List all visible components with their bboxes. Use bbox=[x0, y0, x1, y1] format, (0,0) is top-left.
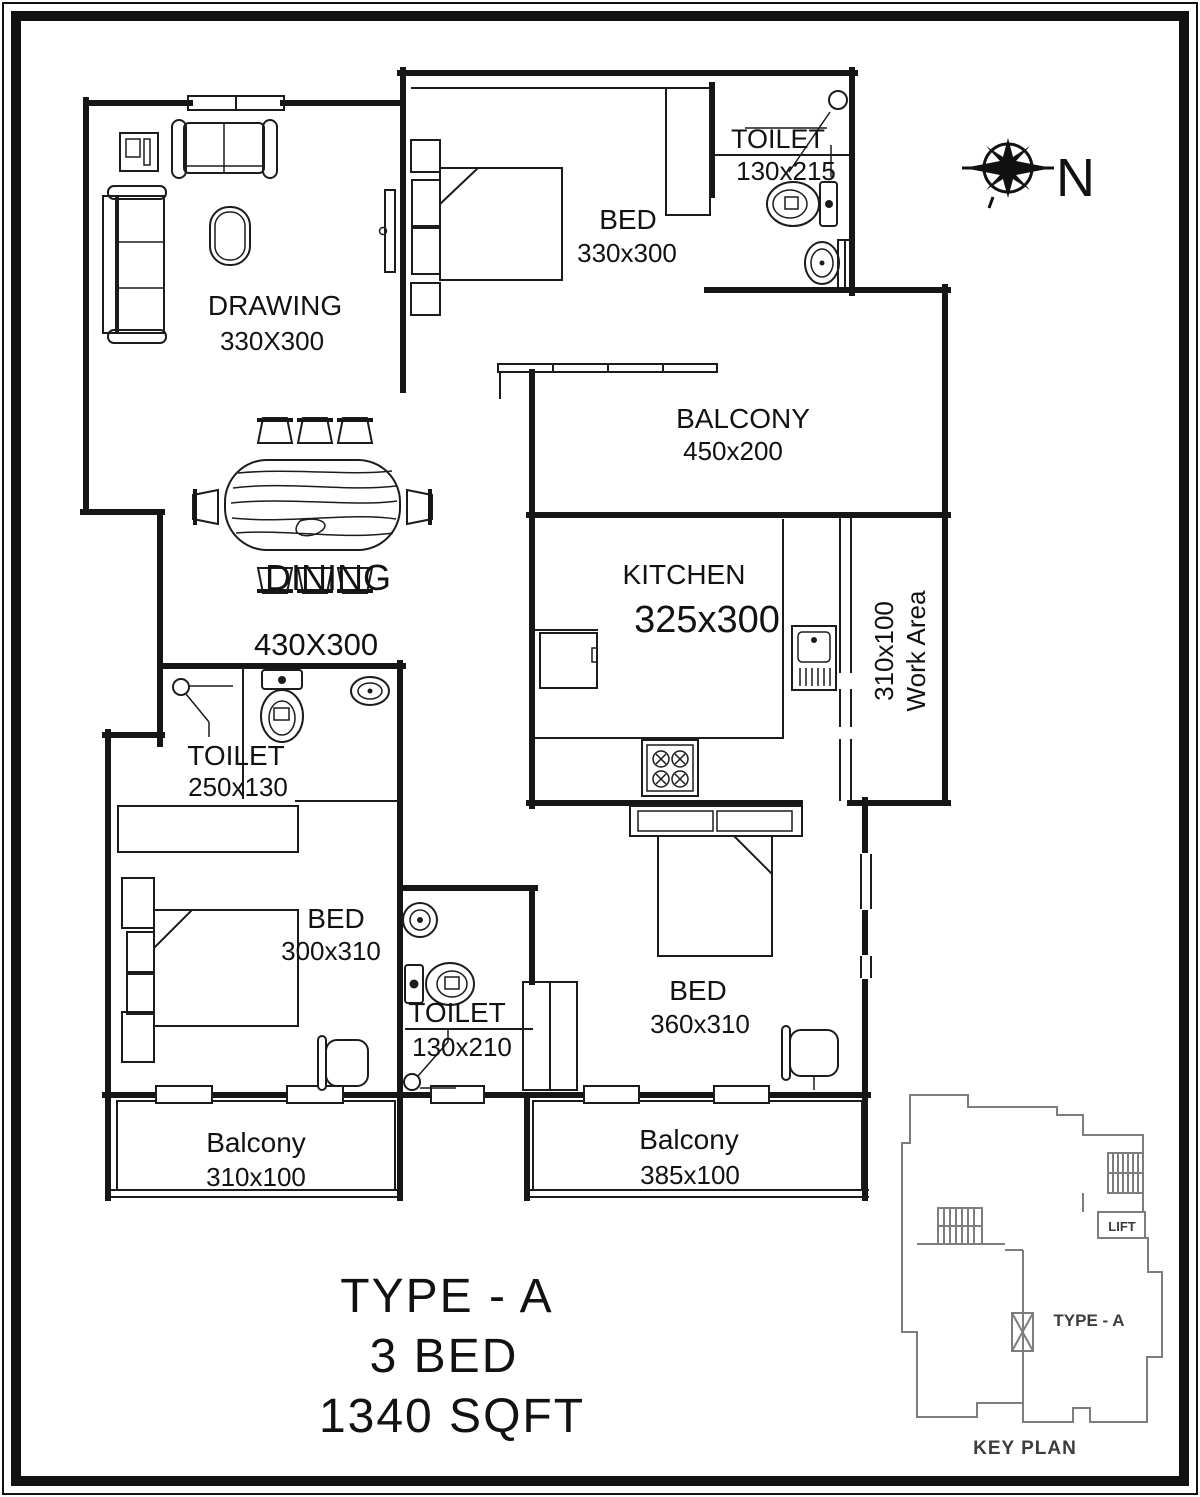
key-plan: LIFT TYPE - A KEY PLAN bbox=[902, 1095, 1162, 1459]
floor-plan-canvas: N DRAWING 330X300 BED 330x300 TOILET 130… bbox=[0, 0, 1200, 1497]
title-line2: 3 BED bbox=[370, 1330, 519, 1383]
keyplan-caption: KEY PLAN bbox=[973, 1438, 1077, 1459]
room-label-balcony-top: BALCONY bbox=[676, 403, 810, 434]
wc-icon bbox=[767, 182, 837, 226]
room-dims-balcony-top: 450x200 bbox=[683, 436, 783, 466]
room-dims-dining: 430X300 bbox=[254, 627, 378, 662]
room-dims-toilet3: 130x210 bbox=[412, 1032, 512, 1062]
room-dims-balcony-br: 385x100 bbox=[640, 1160, 740, 1190]
wardrobe-icon bbox=[118, 806, 298, 852]
chair-icon bbox=[782, 1026, 838, 1090]
room-label-balcony-bl: Balcony bbox=[206, 1127, 306, 1158]
room-dims-kitchen: 325x300 bbox=[634, 599, 780, 641]
keyplan-lift-label: LIFT bbox=[1108, 1219, 1135, 1234]
bed3-furniture bbox=[523, 806, 838, 1090]
room-label-kitchen: KITCHEN bbox=[623, 559, 746, 590]
room-label-bed2: BED bbox=[307, 903, 365, 934]
room-dims-bed1: 330x300 bbox=[577, 238, 677, 268]
room-label-drawing: DRAWING bbox=[208, 290, 342, 321]
room-label-bed3: BED bbox=[669, 975, 727, 1006]
work-area-dims: 310x100 bbox=[869, 601, 899, 701]
thin-lines bbox=[112, 88, 871, 1197]
room-dims-toilet2: 250x130 bbox=[188, 772, 288, 802]
sofa-three-seat-icon bbox=[103, 186, 166, 343]
stove-icon bbox=[642, 740, 698, 796]
room-dims-bed2: 300x310 bbox=[281, 936, 381, 966]
title-line1: TYPE - A bbox=[340, 1270, 553, 1323]
room-label-toilet2: TOILET bbox=[187, 740, 285, 771]
shower-icon bbox=[173, 679, 189, 695]
room-dims-bed3: 360x310 bbox=[650, 1009, 750, 1039]
room-dims-drawing: 330X300 bbox=[220, 326, 324, 356]
washbasin-icon bbox=[403, 903, 437, 937]
dresser-icon bbox=[630, 806, 802, 836]
room-dims-toilet1: 130x215 bbox=[736, 156, 836, 186]
sofa-two-seat-icon bbox=[172, 120, 277, 178]
room-label-toilet3: TOILET bbox=[408, 997, 506, 1028]
room-label-dining: DINING bbox=[265, 557, 391, 598]
coffee-table-icon bbox=[210, 207, 250, 265]
fridge-icon bbox=[540, 633, 597, 688]
shower-icon bbox=[404, 1074, 420, 1090]
north-compass-icon: N bbox=[962, 138, 1095, 208]
title-block: TYPE - A 3 BED 1340 SQFT bbox=[319, 1270, 585, 1443]
room-dims-balcony-bl: 310x100 bbox=[206, 1162, 306, 1192]
room-label-balcony-br: Balcony bbox=[639, 1124, 739, 1155]
north-label: N bbox=[1056, 148, 1095, 208]
keyplan-unit-label: TYPE - A bbox=[1053, 1311, 1124, 1330]
floor-plan-sheet: N DRAWING 330X300 BED 330x300 TOILET 130… bbox=[0, 0, 1200, 1497]
bed1-furniture bbox=[380, 88, 711, 315]
wc-icon bbox=[261, 670, 303, 742]
room-label-bed1: BED bbox=[599, 204, 657, 235]
work-area-label: Work Area bbox=[901, 590, 931, 711]
wardrobe-icon bbox=[666, 88, 710, 215]
washbasin-icon bbox=[805, 242, 839, 284]
sink-icon bbox=[792, 626, 836, 690]
washbasin-icon bbox=[351, 677, 389, 705]
toilet1-fixtures bbox=[745, 91, 847, 284]
shower-icon bbox=[829, 91, 847, 109]
toilet2-fixtures bbox=[173, 670, 389, 742]
title-line3: 1340 SQFT bbox=[319, 1390, 585, 1443]
room-label-toilet1: TOILET bbox=[731, 124, 825, 154]
dining-table-icon bbox=[225, 460, 400, 550]
chair-icon bbox=[318, 1036, 368, 1090]
